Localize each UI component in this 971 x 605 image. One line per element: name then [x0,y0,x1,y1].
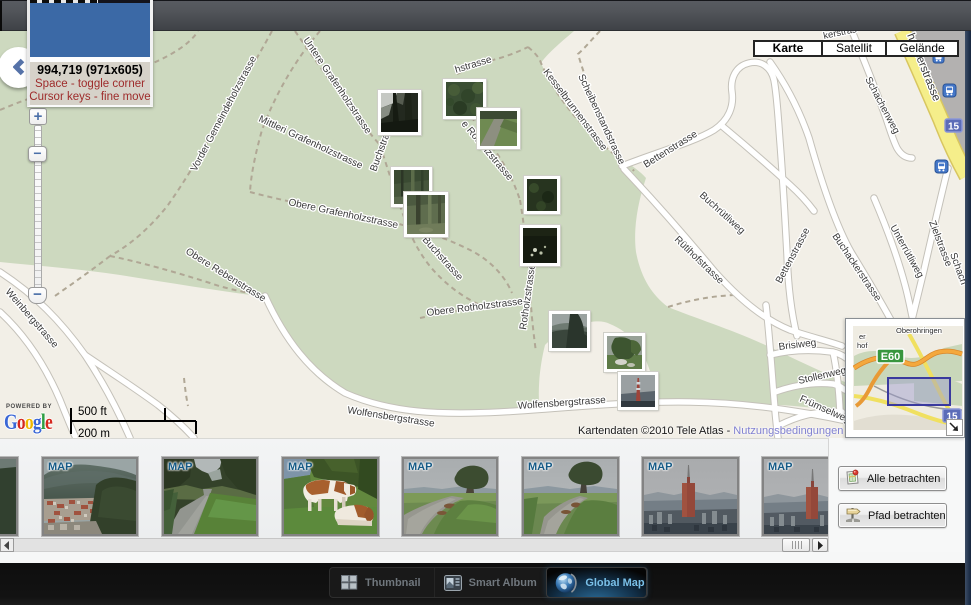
svg-text:Stollenweg: Stollenweg [797,365,847,387]
svg-text:Rütihofstrasse: Rütihofstrasse [672,234,726,287]
svg-text:200 m: 200 m [78,428,110,440]
svg-text:er: er [859,332,866,341]
svg-text:E60: E60 [881,351,901,363]
svg-text:Unterrütliweg: Unterrütliweg [887,223,925,280]
svg-text:Buchstrasse: Buchstrasse [420,235,465,284]
svg-text:Buchackerstrasse: Buchackerstrasse [830,232,884,304]
svg-text:Bettenstrasse: Bettenstrasse [774,226,813,286]
svg-text:Obere Grafenholzstrasse: Obere Grafenholzstrasse [287,197,399,231]
svg-text:hstrasse: hstrasse [454,54,494,76]
svg-text:Buchrütliweg: Buchrütliweg [697,190,747,236]
svg-text:Mittleri Grafenholzstrasse: Mittleri Grafenholzstrasse [257,114,365,172]
svg-text:Untere Grafenholzstrasse: Untere Grafenholzstrasse [301,36,374,137]
svg-text:Wolfensbergstrasse: Wolfensbergstrasse [517,395,606,412]
svg-text:500 ft: 500 ft [78,406,108,418]
svg-text:Obere Rotholzstrasse: Obere Rotholzstrasse [426,296,524,319]
svg-text:hof: hof [857,341,868,350]
svg-text:Bettenstrasse: Bettenstrasse [642,129,700,171]
svg-text:Wolfensbergstrasse: Wolfensbergstrasse [347,405,436,430]
svg-text:Oberohringen: Oberohringen [896,326,942,335]
svg-text:15: 15 [948,122,960,133]
svg-text:Vorder Gemeindeholzstrasse: Vorder Gemeindeholzstrasse [189,54,259,173]
svg-text:Obere Rebenstrasse: Obere Rebenstrasse [183,246,267,304]
svg-text:Frümselweg: Frümselweg [798,394,852,426]
svg-text:Brisiweg: Brisiweg [778,337,817,353]
svg-text:Schachenweg: Schachenweg [862,75,901,136]
